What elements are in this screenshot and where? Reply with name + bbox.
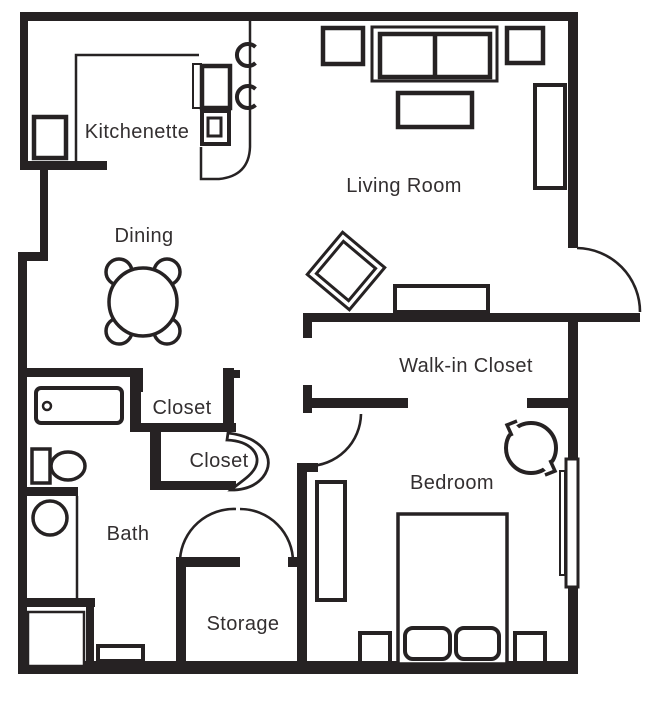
wall-closet1-west [130,370,141,432]
wall-bedroom-west [297,463,307,672]
wall-top [20,12,578,21]
bar-stool [237,86,256,108]
wall-bath-north [20,368,143,377]
floor-mat [98,646,143,661]
kitchen-wall-appliance [34,117,66,158]
wall-closet1-south [130,423,236,432]
refrigerator [202,66,230,108]
toilet-bowl [51,452,85,480]
wall-right-bedroom [568,586,578,674]
side-table-right [507,28,543,63]
toilet-tank [32,449,50,483]
wall-right-walkin [568,322,578,459]
bath-door-swing [180,509,236,559]
bedroom-window [566,459,578,587]
floor-plan: Kitchenette Living Room Dining Walk-in C… [0,0,647,702]
bedroom-window-pane [560,471,565,575]
wall-walkin-south-east [527,398,578,408]
pillow [456,628,499,659]
living-room-furniture [307,27,565,312]
nightstand-right [515,633,545,663]
room-label-dining: Dining [114,225,173,247]
wall-bath-south [20,598,95,607]
wall-hall-stub-upper [303,322,312,338]
accent-chair-inner [316,241,375,300]
room-label-closet-2: Closet [189,450,248,472]
dresser [317,482,345,600]
bedroom-furniture [317,421,578,664]
wall-toilet-nook-south [20,487,78,496]
nightstand-left [360,633,390,663]
bathtub-drain [43,402,51,410]
room-label-bedroom: Bedroom [410,472,494,494]
wall-left-jog-vertical [40,161,48,257]
room-label-kitchenette: Kitchenette [85,121,189,143]
room-label-bath: Bath [107,523,150,545]
laundry-unit [28,612,84,666]
wall-left-upper [20,12,28,170]
dining-table [109,268,177,336]
wall-laundry-east [86,598,94,672]
kitchen-sink-basin [208,118,221,136]
dining-furniture [106,259,180,344]
wall-left-lower [18,252,27,674]
wall-walkin-south-west [303,398,408,408]
kitchen-counter-edge [76,55,199,161]
wall-closet1-east-stub [223,370,240,378]
floor-plan-drawing: Kitchenette Living Room Dining Walk-in C… [0,0,647,702]
side-table-left [323,28,363,64]
bath-sink [33,501,67,535]
room-label-closet-1: Closet [152,397,211,419]
console-table [395,286,488,312]
room-label-walk-in-closet: Walk-in Closet [399,355,533,377]
wall-right-living [568,12,578,248]
media-shelf [535,85,565,188]
entry-door-swing [577,248,640,312]
storage-door-swing [240,509,293,562]
wall-closet2-south [150,481,236,490]
wall-kitchenette-south [20,161,107,170]
room-label-storage: Storage [207,613,280,635]
coffee-table [398,93,472,127]
wall-living-south [303,313,640,322]
bedroom-door-swing [308,414,361,466]
bar-stool [237,44,256,66]
accent-chair [307,232,384,309]
wall-storage-west [176,557,186,672]
pillow [405,628,450,659]
room-label-living-room: Living Room [346,175,462,197]
